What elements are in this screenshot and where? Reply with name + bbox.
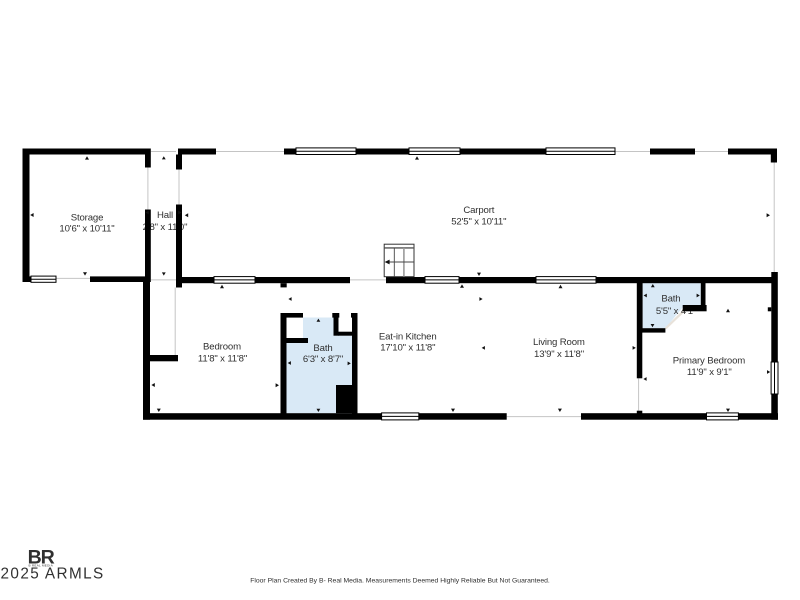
svg-text:Hall: Hall	[157, 210, 173, 221]
svg-text:17'10" x 11'8": 17'10" x 11'8"	[380, 343, 435, 354]
svg-text:Eat-in Kitchen: Eat-in Kitchen	[379, 331, 437, 342]
svg-text:11'8" x 11'8": 11'8" x 11'8"	[198, 354, 247, 365]
svg-text:Bath: Bath	[661, 293, 680, 304]
svg-text:Bath: Bath	[313, 343, 332, 354]
svg-text:Floor Plan Created By B- Real: Floor Plan Created By B- Real Media. Mea…	[250, 577, 550, 584]
svg-text:2025 ARMLS: 2025 ARMLS	[1, 565, 105, 582]
svg-text:Bedroom: Bedroom	[203, 342, 241, 353]
svg-text:Primary Bedroom: Primary Bedroom	[673, 355, 746, 366]
svg-text:13'9" x 11'8": 13'9" x 11'8"	[534, 349, 584, 360]
svg-text:Storage: Storage	[71, 213, 104, 224]
svg-text:52'5" x 10'11": 52'5" x 10'11"	[451, 216, 506, 227]
svg-text:Carport: Carport	[463, 205, 494, 216]
svg-text:11'9" x 9'1": 11'9" x 9'1"	[687, 367, 732, 378]
svg-text:6'3" x 8'7": 6'3" x 8'7"	[303, 354, 343, 365]
svg-text:Living Room: Living Room	[533, 337, 585, 348]
svg-text:10'6" x 10'11": 10'6" x 10'11"	[59, 224, 114, 235]
